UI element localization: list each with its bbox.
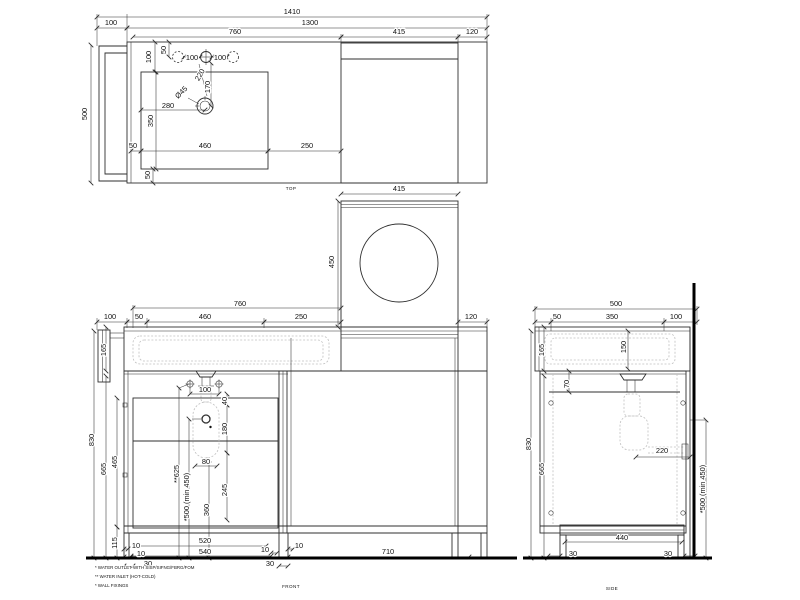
dim-front-80: 80 xyxy=(202,457,210,466)
dim-1300: 1300 xyxy=(302,18,318,27)
dim-top-280: 280 xyxy=(162,101,174,110)
dim-side-350: 350 xyxy=(606,312,618,321)
dim-top-250: 250 xyxy=(301,141,313,150)
top-view xyxy=(91,14,487,183)
dim-top-220: 220 xyxy=(193,67,207,82)
dim-side-500min: *500 (min 450) xyxy=(698,465,707,513)
dim-front-625: **625 xyxy=(172,465,181,483)
caption-side: SIDE xyxy=(606,586,618,591)
dim-top-50b: 50 xyxy=(143,171,152,179)
dim-front-500min: *500 (min 450) xyxy=(182,473,191,521)
dim-front-165: 165 xyxy=(99,344,108,356)
dim-side-220: 220 xyxy=(656,446,668,455)
dim-top-415: 415 xyxy=(393,27,405,36)
countertop-outline xyxy=(127,42,487,183)
dim-front-460: 460 xyxy=(199,312,211,321)
side-view xyxy=(523,283,712,559)
side-dimensions xyxy=(531,327,706,558)
washer-drum-icon xyxy=(360,224,438,302)
front-top-dimensions xyxy=(97,305,487,330)
dim-front-120: 120 xyxy=(465,312,477,321)
leg xyxy=(560,535,566,557)
dim-side-165: 165 xyxy=(537,344,546,356)
dim-front-115: 115 xyxy=(110,537,119,549)
dim-front-250: 250 xyxy=(295,312,307,321)
dim-top-170: 170 xyxy=(203,81,212,93)
top-view-dimensions xyxy=(91,14,487,183)
dim-top-500: 500 xyxy=(80,108,89,120)
drain-icon xyxy=(195,96,213,114)
dim-front-100c: 100 xyxy=(199,385,211,394)
dim-hole-100a: 100 xyxy=(186,53,198,62)
towel-bar-top xyxy=(99,46,127,181)
dim-drain-d45: Ø45 xyxy=(173,84,189,100)
footnote-water-inlet: ** WATER INLET (HOT-COLD) xyxy=(95,574,156,579)
washer-view xyxy=(338,194,458,327)
dim-front-180: 180 xyxy=(220,423,229,435)
faucet-holes xyxy=(173,49,239,65)
caption-front: FRONT xyxy=(282,584,300,589)
dim-front-360: 360 xyxy=(202,504,211,516)
dim-top-100v: 100 xyxy=(144,51,153,63)
fixing-screw-icon xyxy=(681,511,685,515)
dim-front-760: 760 xyxy=(234,299,246,308)
fixing-screw-icon xyxy=(681,401,685,405)
dim-front-30b: 30 xyxy=(266,559,274,568)
dim-front-40: 40 xyxy=(220,397,229,405)
dim-washer-415: 415 xyxy=(393,184,405,193)
dim-front-540: 540 xyxy=(199,547,211,556)
fixing-screw-icon xyxy=(549,401,553,405)
leg xyxy=(678,535,684,557)
dim-side-30b: 30 xyxy=(664,549,672,558)
dim-overall-1410: 1410 xyxy=(284,7,300,16)
footnote-water-outlet: * WATER OUTLET WITH SISP/SIFNG/FBRG/FOM xyxy=(95,565,195,570)
dim-bracket-100: 100 xyxy=(105,18,117,27)
dim-side-30a: 30 xyxy=(569,549,577,558)
dim-side-100: 100 xyxy=(670,312,682,321)
technical-drawing: Vanity unit with washing machine niche -… xyxy=(0,0,800,600)
dim-side-440: 440 xyxy=(616,533,628,542)
leg xyxy=(279,533,288,557)
fixing-screw-icon xyxy=(549,511,553,515)
dim-front-10b: 10 xyxy=(137,549,145,558)
dim-top-760: 760 xyxy=(229,27,241,36)
dim-top-50v: 50 xyxy=(159,46,168,54)
dim-top-50s: 50 xyxy=(129,141,137,150)
dim-side-500: 500 xyxy=(610,299,622,308)
dim-top-350: 350 xyxy=(146,115,155,127)
front-view xyxy=(86,305,517,566)
front-detail-dimensions xyxy=(94,327,227,558)
washer-niche-plan xyxy=(341,43,458,183)
dim-front-665: 665 xyxy=(99,463,108,475)
dim-side-50: 50 xyxy=(553,312,561,321)
dim-front-520: 520 xyxy=(199,536,211,545)
dim-side-150: 150 xyxy=(619,341,628,353)
water-outlet-icon xyxy=(202,415,210,423)
leg xyxy=(124,533,129,557)
dim-front-10c: 10 xyxy=(261,545,269,554)
washer-front-outline xyxy=(341,201,458,327)
dim-washer-450: 450 xyxy=(327,256,336,268)
dimension-labels: 1410130010076041512050010050100100220170… xyxy=(80,7,707,591)
water-inlet-left-icon xyxy=(186,380,195,389)
basin-bowl-hidden-side xyxy=(545,334,675,364)
dim-front-830: 830 xyxy=(87,434,96,446)
dim-side-665: 665 xyxy=(537,463,546,475)
leg xyxy=(452,533,458,557)
cabinet-side xyxy=(540,371,686,557)
dim-front-10d: 10 xyxy=(295,541,303,550)
dim-front-710: 710 xyxy=(382,547,394,556)
footnote-wall-fixings: * WALL FIXINGS xyxy=(95,583,128,588)
dim-hole-100b: 100 xyxy=(214,53,226,62)
dim-front-245: 245 xyxy=(220,484,229,496)
dim-top-460: 460 xyxy=(199,141,211,150)
dim-front-100: 100 xyxy=(104,312,116,321)
caption-top: TOP xyxy=(286,186,297,191)
dim-front-50: 50 xyxy=(135,312,143,321)
water-inlet-right-icon xyxy=(215,380,224,389)
dim-side-70: 70 xyxy=(562,380,571,388)
siphon-side xyxy=(620,374,688,459)
leg xyxy=(481,533,487,557)
dim-side-830: 830 xyxy=(524,438,533,450)
faucet-hole-optional-left-icon xyxy=(173,52,184,63)
cabinet-front xyxy=(123,327,487,557)
faucet-hole-optional-right-icon xyxy=(228,52,239,63)
dim-top-120: 120 xyxy=(466,27,478,36)
dim-front-465: 465 xyxy=(110,456,119,468)
